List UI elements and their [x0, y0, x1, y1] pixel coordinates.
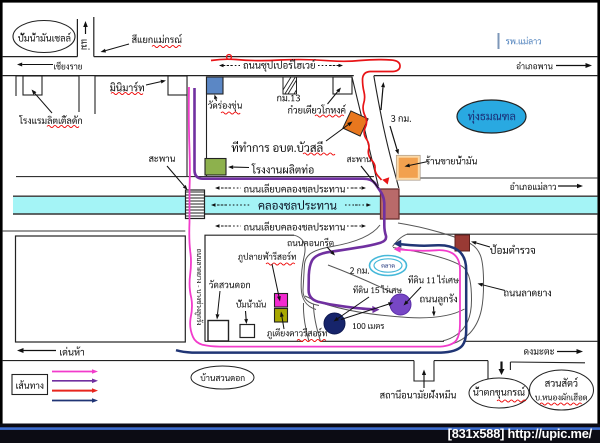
- svg-text:[831x588] http://upic.me/: [831x588] http://upic.me/: [448, 426, 593, 441]
